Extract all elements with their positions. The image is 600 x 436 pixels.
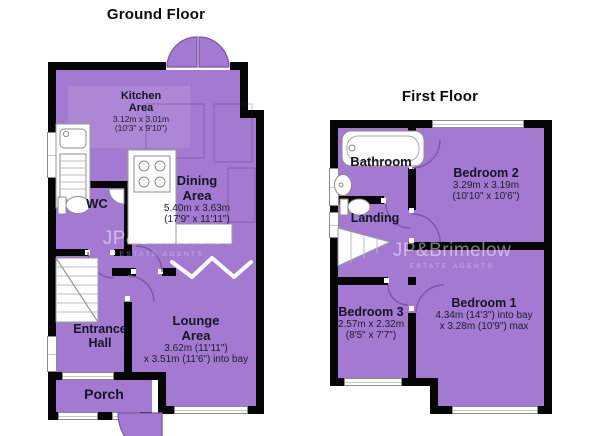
room-dims-imperial: (8'5" x 7'7") (338, 330, 404, 341)
room-dims-metric: 5.40m x 3.63m (164, 203, 230, 214)
door-arc (128, 276, 154, 302)
room-name: Lounge Area (166, 314, 226, 343)
room-dims-imperial: (10'10" x 10'6") (452, 191, 519, 202)
room-label-bathroom: Bathroom (350, 155, 411, 170)
room-dims-imperial: (17'9" x 11'11") (164, 214, 230, 225)
french-doors-icon (167, 37, 229, 67)
kitchen-counter-icon (56, 124, 90, 208)
stairs-icon (56, 258, 98, 322)
room-name: Bedroom 3 (338, 305, 404, 319)
room-label-wc: WC (86, 197, 108, 212)
room-name: Dining Area (167, 174, 227, 203)
room-name: Bedroom 2 (452, 166, 519, 180)
room-label-dining: Dining Area 5.40m x 3.63m (17'9" x 11'11… (164, 174, 230, 225)
door-arc (388, 285, 408, 305)
zigzag-opening (172, 258, 251, 277)
room-name: Porch (84, 387, 124, 403)
room-dims-imperial: x 3.28m (10'9") max (435, 321, 532, 332)
room-name: WC (86, 197, 108, 212)
room-name: Kitchen Area (113, 90, 169, 115)
room-dims-imperial: x 3.51m (11'6") into bay (144, 354, 248, 365)
room-label-lounge: Lounge Area 3.62m (11'11") x 3.51m (11'6… (144, 314, 248, 365)
floorplan-image: Ground Floor First Floor (0, 0, 600, 436)
room-dims-metric: 3.29m x 3.19m (452, 180, 519, 191)
room-dims-metric: 4.34m (14'3") into bay (435, 310, 532, 321)
room-dims-metric: 3.62m (11'11") (144, 343, 248, 354)
door-arc (136, 246, 162, 272)
porch-door-icon (118, 413, 162, 436)
stairs-icon (338, 228, 390, 266)
room-label-bedroom3: Bedroom 3 2.57m x 2.32m (8'5" x 7'7") (338, 305, 404, 341)
room-dims-metric: 2.57m x 2.32m (338, 319, 404, 330)
sink-icon (335, 175, 352, 196)
door-arcs-ground (88, 246, 162, 302)
room-label-entrance-hall: Entrance Hall (68, 322, 132, 350)
room-label-kitchen: Kitchen Area 3.12m x 3.01m (10'3" x 9'10… (113, 90, 169, 134)
room-label-porch: Porch (84, 387, 124, 403)
room-name: Entrance Hall (68, 322, 132, 350)
room-dims-imperial: (10'3" x 9'10") (113, 124, 169, 134)
corner-sink-icon (109, 189, 124, 204)
room-label-landing: Landing (351, 211, 400, 225)
door-arc (412, 214, 440, 242)
room-name: Bedroom 1 (435, 296, 532, 310)
room-label-bedroom1: Bedroom 1 4.34m (14'3") into bay x 3.28m… (435, 296, 532, 332)
plan-symbols (0, 0, 600, 436)
room-label-bedroom2: Bedroom 2 3.29m x 3.19m (10'10" x 10'6") (452, 166, 519, 202)
room-name: Bathroom (350, 155, 411, 170)
room-name: Landing (351, 211, 400, 225)
